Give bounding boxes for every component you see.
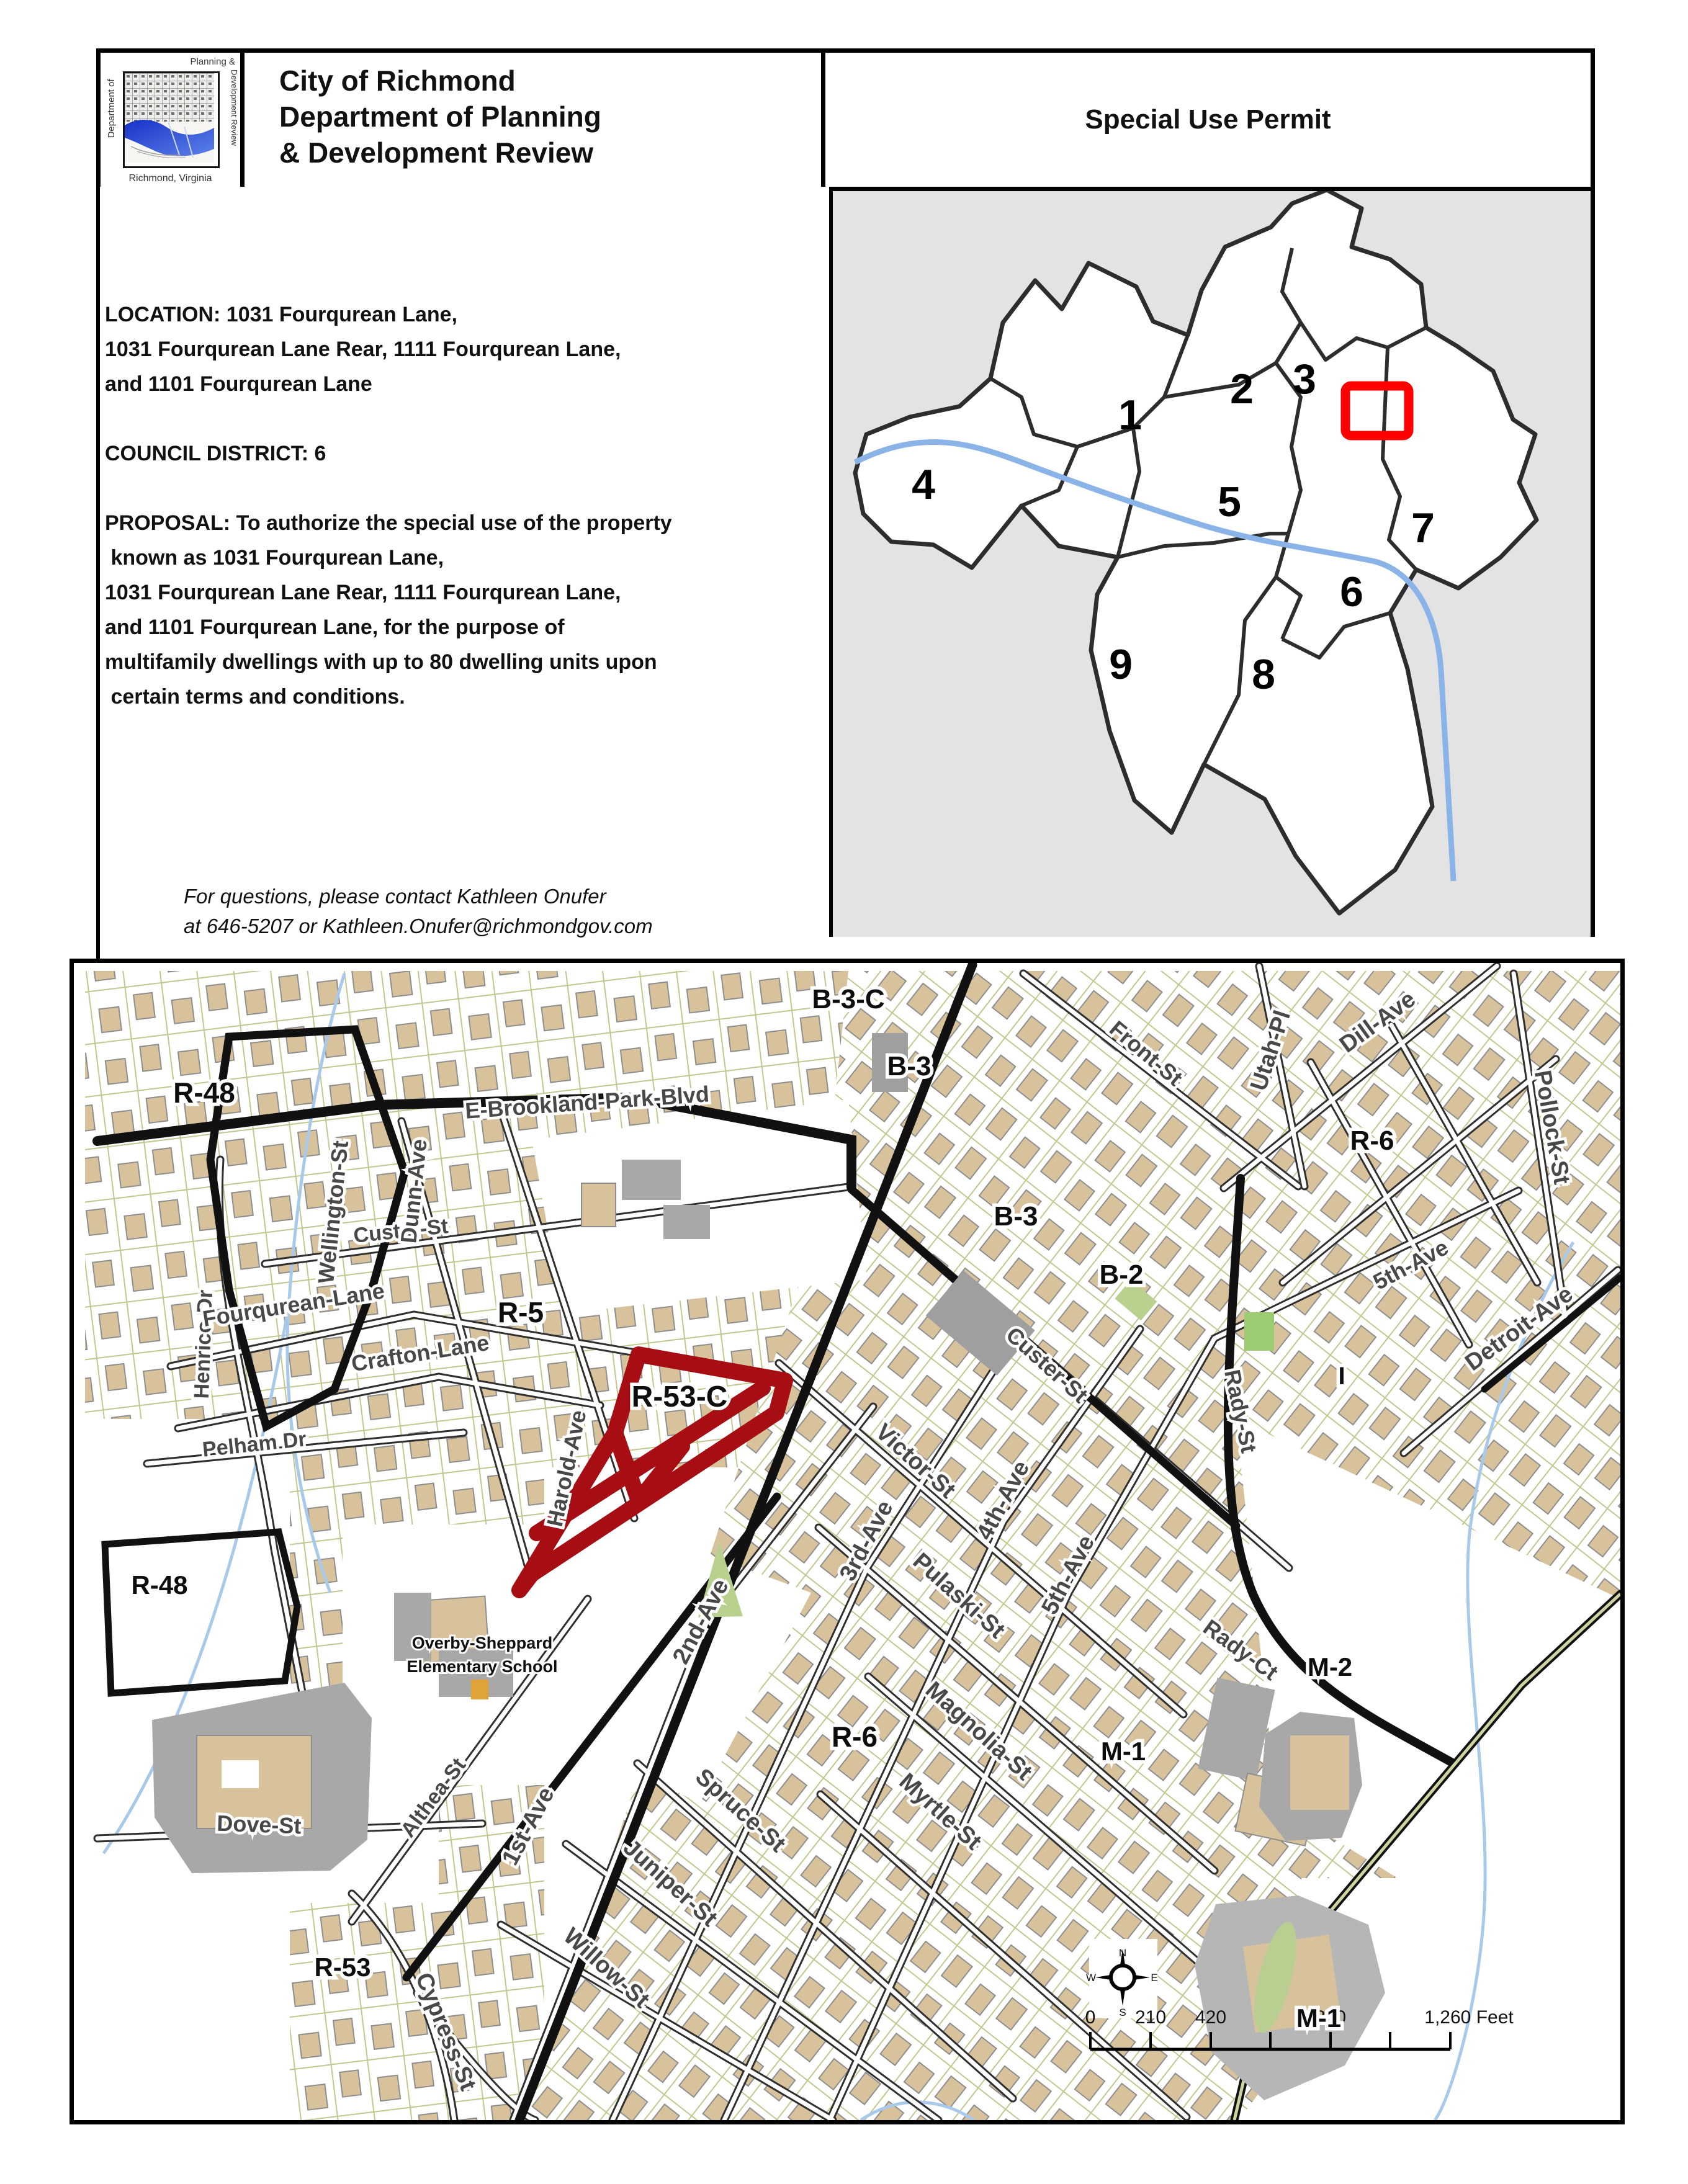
info-line-5 [105, 471, 825, 506]
m2-building [1259, 1712, 1362, 1841]
info-line-6: PROPOSAL: To authorize the special use o… [105, 506, 825, 540]
info-line-2: and 1101 Fourqurean Lane [105, 367, 825, 401]
district-6-label: 6 [1340, 568, 1363, 615]
zone-label-i: I [1338, 1363, 1345, 1390]
contact-line-1: For questions, please contact Kathleen O… [184, 882, 653, 911]
scale-label-0: 0 [1085, 2007, 1096, 2028]
title-line-2: Department of Planning [279, 99, 821, 135]
logo-map-image [123, 71, 220, 168]
district-2-label: 2 [1230, 365, 1254, 413]
zone-label-m-2: M-2 [1308, 1652, 1352, 1681]
svg-text:E: E [1151, 1972, 1157, 1984]
compass-rose: N S W E [1086, 1939, 1158, 2018]
scale-label-210: 210 [1135, 2007, 1166, 2028]
zone-label-m-1: M-1 [1296, 2003, 1341, 2033]
district-4-label: 4 [912, 461, 935, 508]
zone-label-r-53: R-53 [314, 1953, 370, 1982]
zone-label-m-1: M-1 [1101, 1737, 1146, 1766]
header: Planning & Department of Development Rev… [96, 48, 1595, 191]
zone-label-b-3: B-3 [994, 1201, 1038, 1232]
contact-info: For questions, please contact Kathleen O… [184, 882, 653, 941]
district-8-label: 8 [1252, 651, 1275, 698]
council-district-locator-map: 123456789 [829, 191, 1595, 937]
zoning-map: N S W E 02104208401,260 Feet E-Brookland… [70, 959, 1625, 2124]
school-label-line-1: Overby-Sheppard [412, 1634, 553, 1652]
street-label-dove-st: Dove-St [217, 1810, 302, 1839]
zone-label-r-48: R-48 [173, 1076, 235, 1109]
permit-notice-page: Planning & Department of Development Rev… [0, 0, 1688, 2184]
info-line-11: certain terms and conditions. [105, 679, 825, 714]
svg-text:S: S [1119, 2007, 1126, 2018]
svg-text:W: W [1086, 1972, 1096, 1984]
department-logo: Planning & Department of Development Rev… [101, 53, 245, 187]
info-line-1: 1031 Fourqurean Lane Rear, 1111 Fourqure… [105, 332, 825, 367]
case-info-text: LOCATION: 1031 Fourqurean Lane,1031 Four… [105, 297, 825, 714]
scale-label-420: 420 [1195, 2007, 1226, 2028]
logo-text-department: Department of [106, 79, 117, 138]
title-line-3: & Development Review [279, 135, 821, 171]
info-line-0: LOCATION: 1031 Fourqurean Lane, [105, 297, 825, 332]
zone-label-r-6: R-6 [832, 1721, 878, 1753]
district-1-label: 1 [1118, 392, 1142, 439]
district-3-label: 3 [1293, 356, 1316, 403]
info-line-8: 1031 Fourqurean Lane Rear, 1111 Fourqure… [105, 575, 825, 610]
svg-text:N: N [1119, 1947, 1126, 1959]
title-line-1: City of Richmond [279, 63, 821, 99]
info-line-9: and 1101 Fourqurean Lane, for the purpos… [105, 610, 825, 645]
permit-type-label: Special Use Permit [1085, 104, 1331, 135]
info-line-7: known as 1031 Fourqurean Lane, [105, 540, 825, 575]
zone-label-b-3-c: B-3-C [812, 984, 884, 1014]
logo-text-development-review: Development Review [230, 69, 239, 146]
zone-label-r-53-c: R-53-C [632, 1381, 728, 1413]
school-label-line-2: Elementary School [406, 1657, 557, 1676]
logo-text-planning: Planning & [190, 56, 235, 67]
zone-label-r-48: R-48 [131, 1570, 187, 1600]
zone-label-r-6: R-6 [1350, 1126, 1394, 1156]
district-9-label: 9 [1109, 641, 1133, 688]
info-line-10: multifamily dwellings with up to 80 dwel… [105, 645, 825, 679]
case-info-panel: LOCATION: 1031 Fourqurean Lane,1031 Four… [96, 187, 829, 959]
zone-label-b-3: B-3 [887, 1051, 932, 1081]
scale-label-1-260-Feet: 1,260 Feet [1424, 2007, 1514, 2028]
logo-text-richmond-virginia: Richmond, Virginia [129, 173, 212, 184]
district-5-label: 5 [1218, 478, 1241, 526]
permit-type-cell: Special Use Permit [825, 53, 1591, 187]
zone-label-r-5: R-5 [498, 1296, 544, 1328]
contact-line-2: at 646-5207 or Kathleen.Onufer@richmondg… [184, 911, 653, 941]
info-line-4: COUNCIL DISTRICT: 6 [105, 436, 825, 471]
header-title: City of Richmond Department of Planning … [245, 53, 825, 187]
city-districts-outline [855, 191, 1537, 913]
district-7-label: 7 [1411, 504, 1435, 552]
info-line-3 [105, 401, 825, 436]
zone-label-b-2: B-2 [1100, 1260, 1144, 1290]
